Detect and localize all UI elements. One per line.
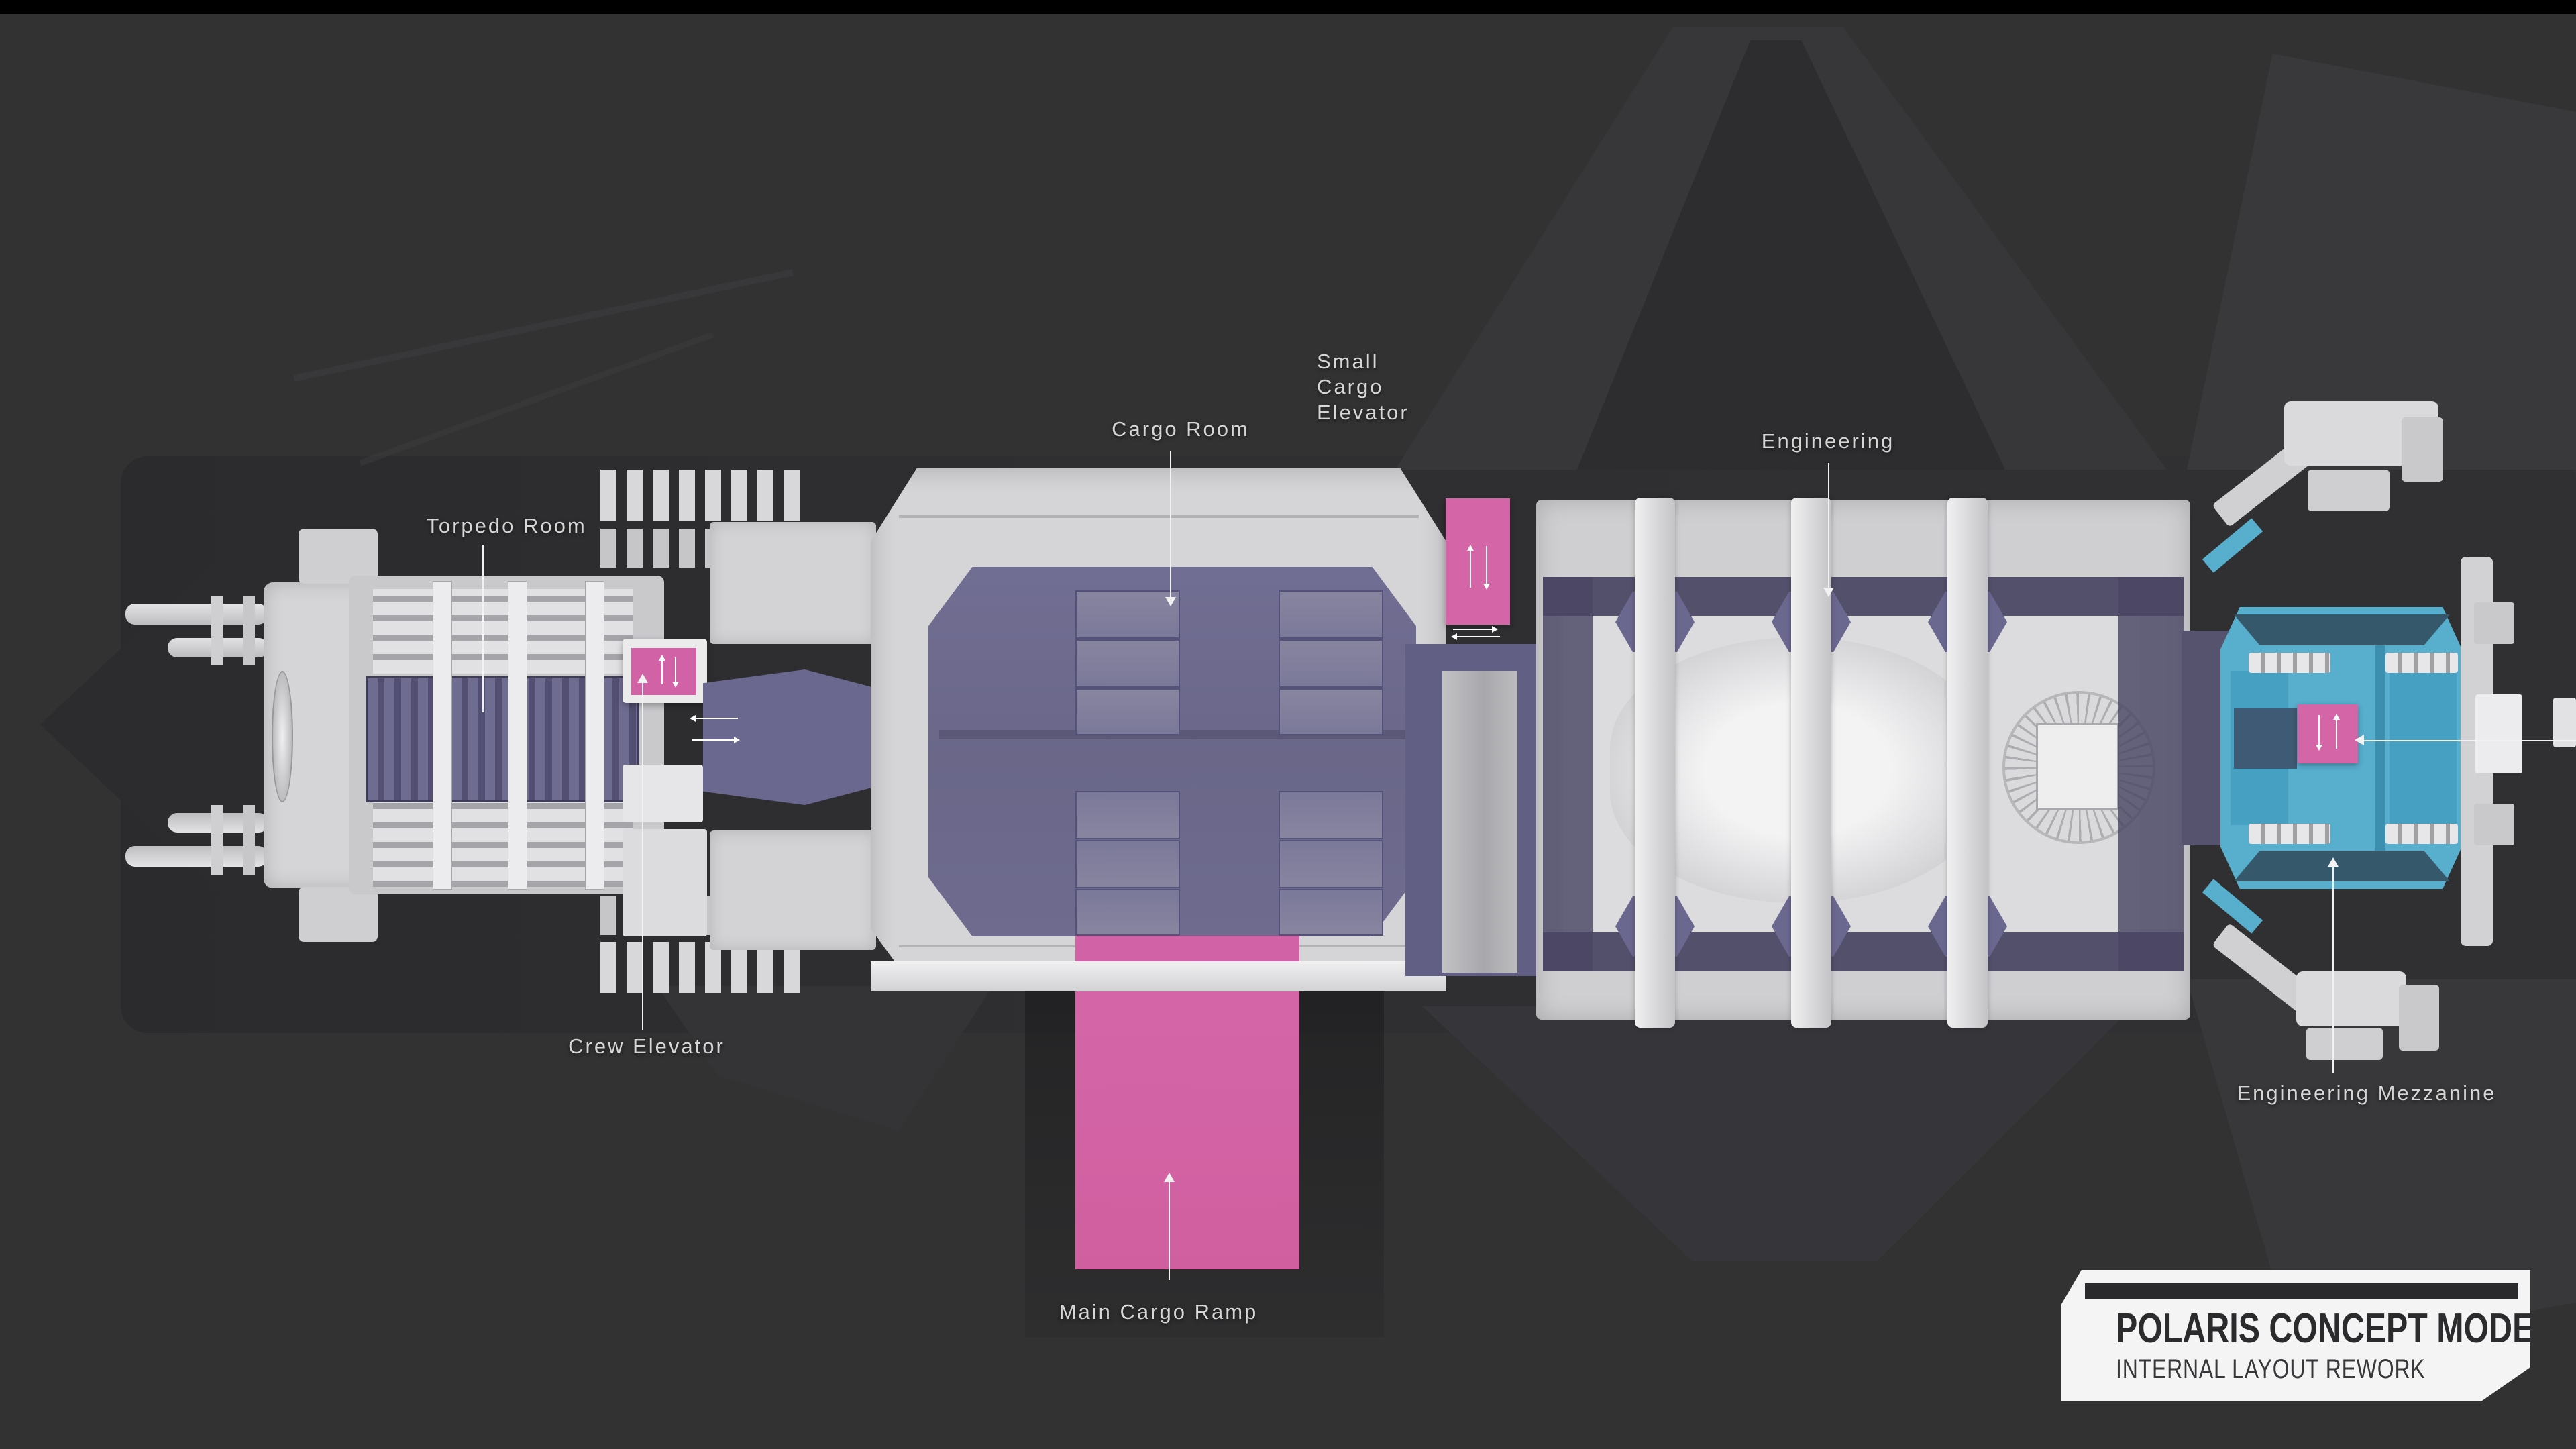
main-cargo-ramp-leader-line	[1169, 1182, 1170, 1280]
bow-lower-fitting	[299, 887, 378, 942]
crew-elevator-machinery-block-2	[623, 829, 707, 936]
cargo-box	[1279, 688, 1383, 735]
mezzanine-right-panel	[2390, 661, 2457, 835]
mezzanine-truss	[2385, 653, 2458, 673]
stern-bottom-fin-2	[2306, 1028, 2383, 1060]
cargo-box	[1075, 590, 1180, 639]
engineering-ring-right	[2118, 577, 2184, 971]
cargo-box	[1279, 590, 1383, 639]
cargo-ramp-door-highlight	[1075, 936, 1299, 961]
shaft-right-arrow-icon	[1492, 626, 1498, 633]
torpedo-room-label: Torpedo Room	[366, 514, 647, 538]
bow-tube-brace	[211, 596, 223, 665]
stern-engine-block-small	[2474, 804, 2514, 845]
small-cargo-elevator-up-arrow-icon	[1467, 545, 1474, 551]
main-cargo-ramp-label-text: Main Cargo Ramp	[1059, 1300, 1258, 1324]
cargo-room-label-text: Cargo Room	[1112, 417, 1250, 441]
polaris-internal-layout-diagram: Torpedo Room Crew Elevator Cargo Room Sm…	[0, 0, 2576, 1449]
crew-elevator-label: Crew Elevator	[506, 1034, 788, 1059]
passage-right-arrow-icon	[734, 737, 740, 743]
stern-top-fin-side	[2402, 417, 2443, 482]
engineering-label-text: Engineering	[1762, 429, 1894, 453]
mezzanine-elevator-down-arrow-icon	[2316, 745, 2322, 751]
corridor-lower-machinery	[710, 830, 876, 950]
stern-engine-block-small	[2474, 602, 2514, 644]
badge-title: POLARIS CONCEPT MODEL	[2116, 1305, 2554, 1352]
mezzanine-truss	[2249, 653, 2330, 673]
cargo-box	[1279, 639, 1383, 688]
cargo-box	[1075, 688, 1180, 735]
cargo-box	[1075, 639, 1180, 688]
cargo-box	[1075, 840, 1180, 888]
mezzanine-elevator-left-arrow-icon	[2355, 735, 2364, 745]
torpedo-room-leader-line	[482, 545, 484, 712]
engineering-cross-beam	[1947, 498, 1988, 1028]
cargo-hull-rim	[871, 961, 1446, 991]
mezzanine-console-block	[2234, 708, 2297, 769]
badge-subtitle: INTERNAL LAYOUT REWORK	[2116, 1354, 2426, 1385]
top-letterbox-bar	[0, 0, 2576, 14]
engineering-mezzanine-leader-line	[2332, 867, 2334, 1073]
small-cargo-shaft	[1442, 671, 1517, 973]
mezzanine-top-chamfer	[2234, 614, 2450, 645]
engineering-mezzanine-leader-arrow-icon	[2328, 857, 2339, 867]
mezzanine-elevator-up-arrow-icon	[2336, 719, 2337, 749]
corridor-upper-machinery	[710, 522, 876, 644]
stern-engine-block	[2475, 694, 2522, 773]
stern-bottom-fin	[2296, 971, 2406, 1026]
small-cargo-elevator-label-line3: Elevator	[1317, 400, 1491, 425]
shaft-left-arrow-icon	[1457, 636, 1500, 637]
mezzanine-elevator-down-arrow-icon	[2318, 715, 2320, 745]
passage-left-arrow-icon	[696, 718, 738, 719]
mezzanine-elevator-leader-line	[2364, 740, 2576, 741]
corridor-passage	[703, 669, 888, 805]
engineering-cross-beam	[1635, 498, 1675, 1028]
bow-tube-brace	[243, 805, 255, 875]
main-cargo-ramp-highlight	[1075, 991, 1299, 1269]
engineering-mezzanine-label-text: Engineering Mezzanine	[2237, 1081, 2497, 1105]
cargo-room-label: Cargo Room	[1040, 417, 1322, 441]
engineering-leader-arrow-icon	[1823, 588, 1834, 597]
small-cargo-elevator-down-arrow-icon	[1486, 546, 1487, 584]
mezzanine-elevator-up-arrow-icon	[2333, 714, 2340, 720]
torpedo-comb-rack-top	[600, 470, 802, 521]
passage-left-arrow-icon	[690, 715, 696, 722]
ship-silhouette-upper-left-strut	[293, 269, 793, 382]
main-cargo-ramp-label: Main Cargo Ramp	[1018, 1300, 1299, 1324]
engineering-label: Engineering	[1687, 429, 1969, 453]
shaft-left-arrow-icon	[1451, 633, 1457, 640]
small-cargo-elevator-down-arrow-icon	[1483, 584, 1490, 590]
engineering-ring-left	[1543, 577, 1593, 971]
crew-elevator-leader-line	[642, 683, 643, 1030]
cargo-box	[1075, 791, 1180, 839]
torpedo-bay-pillar	[508, 581, 527, 890]
crew-elevator-up-arrow-icon	[659, 655, 665, 661]
torpedo-room-label-text: Torpedo Room	[426, 514, 586, 537]
bow-sensor-lens	[272, 671, 293, 802]
torpedo-bay-pillar	[433, 581, 452, 890]
cargo-box	[1279, 791, 1383, 839]
crew-elevator-up-arrow-icon	[661, 660, 663, 684]
mezzanine-divider	[2375, 645, 2385, 851]
cargo-box	[1279, 840, 1383, 888]
mezzanine-truss	[2249, 824, 2330, 844]
title-badge: POLARIS CONCEPT MODEL INTERNAL LAYOUT RE…	[2061, 1270, 2530, 1401]
bow-tube-brace	[243, 596, 255, 665]
bow-tube-brace	[211, 805, 223, 875]
ship-silhouette-lower-right-wing	[1422, 1006, 2133, 1261]
shaft-right-arrow-icon	[1453, 629, 1492, 630]
small-cargo-elevator-up-arrow-icon	[1470, 550, 1471, 588]
title-badge-accent-bar	[2085, 1283, 2518, 1299]
stern-bottom-fin-side	[2399, 985, 2439, 1051]
small-cargo-elevator-label-line1: Small	[1317, 349, 1491, 374]
crew-elevator-label-text: Crew Elevator	[568, 1034, 725, 1058]
small-cargo-elevator-highlight	[1446, 498, 1510, 625]
crew-elevator-leader-arrow-icon	[637, 674, 648, 683]
cargo-box	[1075, 889, 1180, 936]
engineering-mezzanine-label: Engineering Mezzanine	[2226, 1081, 2508, 1106]
mezzanine-truss	[2385, 824, 2458, 844]
torpedo-bay-pillar	[585, 581, 604, 890]
stern-top-fin-2	[2308, 470, 2390, 511]
main-cargo-ramp-up-arrow-icon	[1164, 1173, 1175, 1182]
cargo-box	[1279, 889, 1383, 936]
engineering-turbine-housing	[2036, 723, 2119, 810]
engineering-leader-line	[1828, 463, 1829, 588]
passage-right-arrow-icon	[692, 739, 734, 741]
crew-elevator-down-arrow-icon	[675, 657, 676, 682]
crew-elevator-machinery-block	[623, 765, 703, 822]
engineering-cross-beam	[1791, 498, 1831, 1028]
small-cargo-elevator-label-line2: Cargo	[1317, 374, 1491, 400]
cargo-room-leader-line	[1170, 451, 1171, 597]
crew-elevator-down-arrow-icon	[672, 682, 679, 688]
cargo-hull-top-line	[899, 515, 1419, 518]
small-cargo-elevator-label: Small Cargo Elevator	[1317, 349, 1491, 425]
mezzanine-elevator-highlight	[2298, 704, 2358, 763]
cargo-room-leader-arrow-icon	[1165, 597, 1176, 606]
mezzanine-bottom-chamfer	[2234, 851, 2450, 881]
